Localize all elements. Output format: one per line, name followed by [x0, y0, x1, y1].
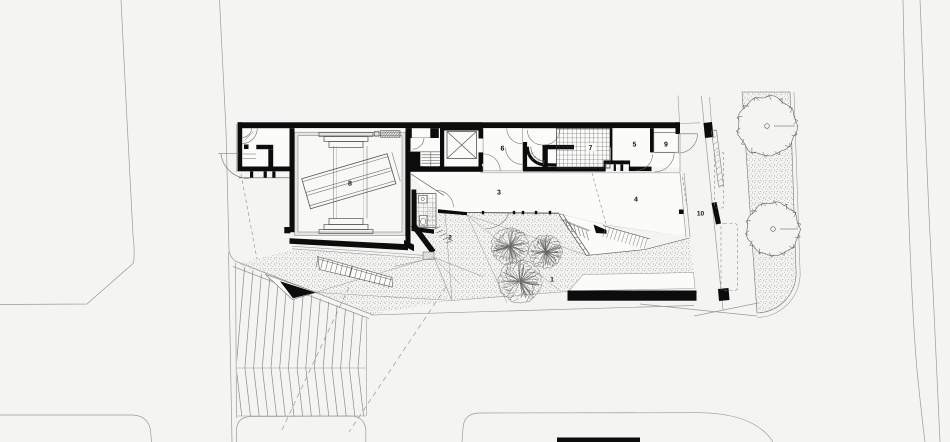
- svg-text:2: 2: [448, 235, 452, 242]
- svg-text:7: 7: [589, 145, 593, 152]
- svg-text:4: 4: [634, 197, 638, 204]
- svg-text:6: 6: [501, 146, 505, 153]
- svg-text:3: 3: [497, 190, 501, 197]
- svg-text:5: 5: [633, 142, 637, 149]
- svg-text:1: 1: [550, 277, 554, 284]
- svg-text:9: 9: [664, 142, 668, 149]
- svg-text:8: 8: [348, 181, 352, 188]
- svg-text:10: 10: [697, 211, 705, 218]
